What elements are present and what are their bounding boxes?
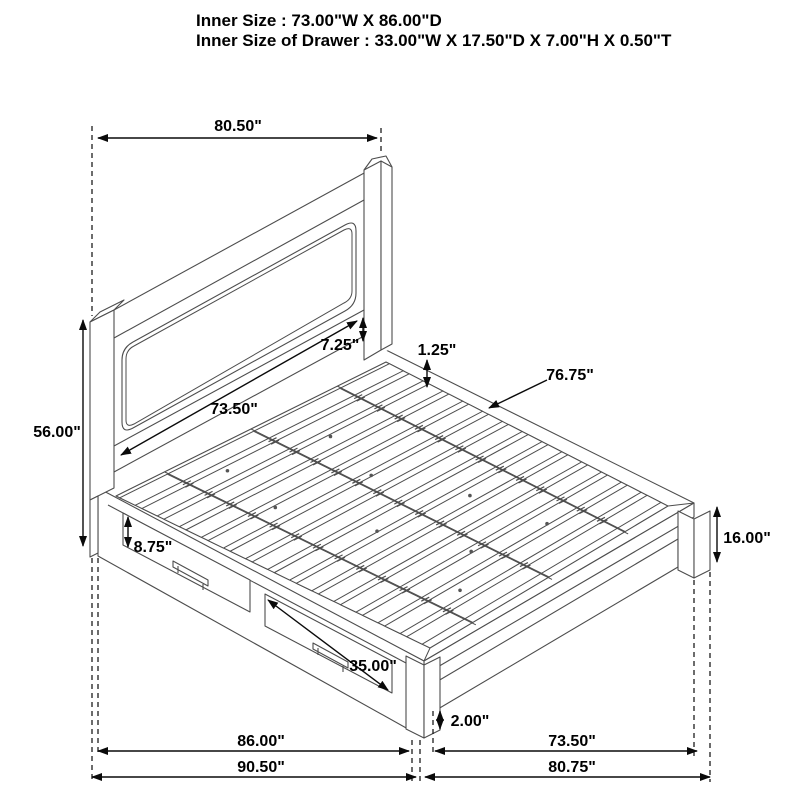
dim-label-foot-outer-width: 80.75" bbox=[548, 759, 596, 776]
inner-size-of-drawer-title: Inner Size of Drawer : 33.00"W X 17.50"D… bbox=[196, 31, 672, 50]
front-leg-left-face bbox=[406, 656, 424, 738]
dim-label-headboard-inner-width: 73.50" bbox=[210, 401, 258, 418]
headboard-right-post bbox=[364, 156, 392, 360]
front-leg-right-face bbox=[424, 657, 440, 738]
dim-label-foot-inner-width: 73.50" bbox=[548, 733, 596, 750]
dim-label-footboard-height: 16.00" bbox=[723, 530, 771, 547]
dim-label-drawer-width: 35.00" bbox=[349, 658, 397, 675]
dim-label-headboard-width: 80.50" bbox=[214, 118, 262, 135]
dim-label-slat-thickness: 1.25" bbox=[418, 342, 457, 359]
dim-label-panel-gap: 7.25" bbox=[321, 337, 360, 354]
leader-slat-length bbox=[489, 380, 547, 408]
right-leg-left-face bbox=[678, 511, 694, 578]
dim-label-foot-clearance: 2.00" bbox=[451, 713, 490, 730]
diagram-canvas: 80.50" 56.00" 73.50" 7.25" 1.25" 76.75" … bbox=[0, 0, 800, 800]
inner-size-title: Inner Size : 73.00"W X 86.00"D bbox=[196, 11, 442, 30]
dim-label-headboard-height: 56.00" bbox=[33, 424, 81, 441]
dim-label-side-outer-depth: 90.50" bbox=[237, 759, 285, 776]
dim-label-side-inner-depth: 86.00" bbox=[237, 733, 285, 750]
dim-label-drawer-height: 8.75" bbox=[134, 539, 173, 556]
bed-dimension-diagram: 80.50" 56.00" 73.50" 7.25" 1.25" 76.75" … bbox=[0, 0, 800, 800]
right-leg-right-face bbox=[694, 511, 710, 578]
headboard-left-leg bbox=[90, 496, 98, 557]
dim-label-slat-length: 76.75" bbox=[546, 367, 594, 384]
